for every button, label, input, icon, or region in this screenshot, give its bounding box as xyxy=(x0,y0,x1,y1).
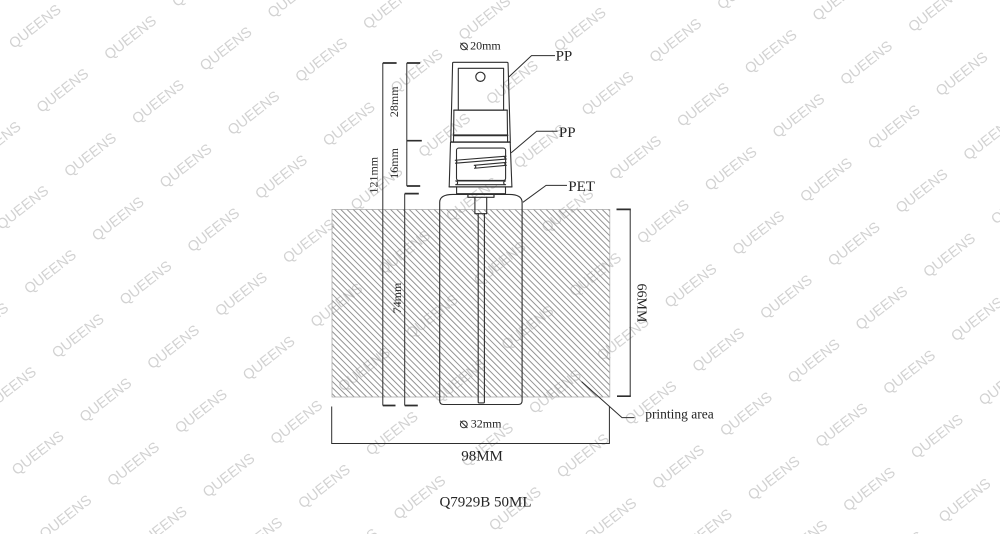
svg-text:PP: PP xyxy=(559,125,576,141)
svg-text:PP: PP xyxy=(556,49,573,65)
svg-text:16mm: 16mm xyxy=(387,147,401,178)
svg-text:74mm: 74mm xyxy=(390,282,404,313)
svg-text:printing area: printing area xyxy=(645,407,714,422)
svg-text:98MM: 98MM xyxy=(461,448,503,464)
svg-text:Q7929B 50ML: Q7929B 50ML xyxy=(439,495,531,511)
svg-text:66MM: 66MM xyxy=(634,284,649,323)
svg-text:32mm: 32mm xyxy=(471,416,502,430)
svg-text:28mm: 28mm xyxy=(387,86,401,117)
svg-text:PET: PET xyxy=(568,179,595,195)
svg-text:121mm: 121mm xyxy=(367,156,381,193)
svg-text:20mm: 20mm xyxy=(470,39,501,53)
